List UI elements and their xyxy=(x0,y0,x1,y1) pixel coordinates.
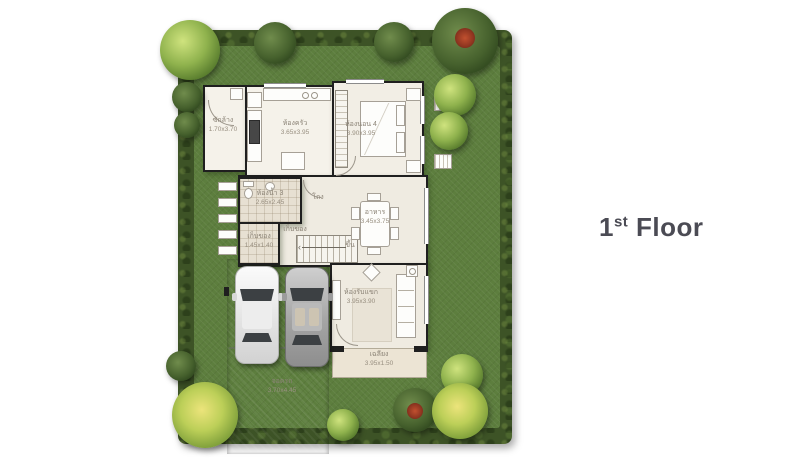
stairs-direction-line xyxy=(302,247,346,248)
room-terrace xyxy=(332,348,427,378)
toilet-bowl xyxy=(244,188,253,199)
bush-left-2 xyxy=(174,112,200,138)
car-windshield xyxy=(290,288,324,301)
area-rug xyxy=(352,288,392,342)
gate-post-left xyxy=(224,287,229,296)
floor-plan-image: ‹ xyxy=(168,4,564,454)
tree-top-left xyxy=(160,20,220,80)
car-mirror xyxy=(328,293,333,301)
sofa-cushion-line xyxy=(398,322,414,323)
dining-chair xyxy=(390,227,399,240)
bush-left-1 xyxy=(172,82,202,112)
side-table-lamp xyxy=(409,268,416,275)
dining-chair xyxy=(351,207,360,220)
ac-unit xyxy=(434,154,452,169)
wardrobe xyxy=(335,90,348,168)
car-seat xyxy=(309,308,319,326)
car-silver xyxy=(285,267,329,367)
tree-red-accent xyxy=(455,28,475,48)
stairs-arrow: ‹ xyxy=(298,242,301,252)
duvet-fold xyxy=(362,103,392,155)
laundry-sink xyxy=(230,88,243,100)
tree-right-1 xyxy=(434,74,476,116)
terrace-column-left xyxy=(330,346,344,352)
staircase xyxy=(296,235,358,263)
tree-right-2 xyxy=(430,112,468,150)
tree-top-right-dark xyxy=(432,8,498,74)
side-step xyxy=(218,246,237,255)
bush-top-1 xyxy=(254,22,296,64)
nightstand xyxy=(406,160,421,173)
toilet-tank xyxy=(243,181,254,187)
side-step xyxy=(218,214,237,223)
car-seat xyxy=(295,308,305,326)
page-title: 1st Floor xyxy=(599,212,704,243)
side-step xyxy=(218,230,237,239)
car-mirror xyxy=(232,293,237,301)
kitchen-counter xyxy=(263,88,331,101)
car-white xyxy=(235,266,279,364)
floor-word: Floor xyxy=(636,212,704,242)
tree-bottom-left-yellow xyxy=(172,382,238,448)
bush-bottom-left xyxy=(166,351,196,381)
pillow xyxy=(396,105,405,126)
floor-suffix: st xyxy=(614,213,628,230)
car-rear-window xyxy=(242,333,272,342)
bush-driveway-right xyxy=(327,409,359,441)
kitchen-sink-bowl xyxy=(311,92,318,99)
floor-number: 1 xyxy=(599,212,614,242)
dining-chair xyxy=(367,193,381,201)
pillow xyxy=(396,132,405,153)
sofa-cushion-line xyxy=(398,290,414,291)
sofa-cushion-line xyxy=(398,306,414,307)
car-rear-window xyxy=(292,335,322,345)
kitchen-island xyxy=(281,152,305,170)
floor-plan-page: ‹ xyxy=(0,0,800,458)
dining-table xyxy=(360,201,390,247)
tv-console xyxy=(332,280,341,320)
dining-chair xyxy=(390,207,399,220)
terrace-column-right xyxy=(414,346,428,352)
side-step xyxy=(218,198,237,207)
tree-bottom-right-dark xyxy=(393,388,437,432)
refrigerator xyxy=(247,92,262,108)
tree-red-accent xyxy=(407,403,423,419)
tree-bottom-right-yellow xyxy=(432,383,488,439)
bedroom-top-window xyxy=(346,79,384,84)
nightstand xyxy=(406,88,421,101)
stove xyxy=(249,120,260,144)
car-roof xyxy=(242,303,272,329)
living-right-window xyxy=(424,276,429,324)
dining-right-window xyxy=(424,188,429,244)
dining-chair xyxy=(351,227,360,240)
side-step xyxy=(218,182,237,191)
kitchen-sink-bowl xyxy=(302,92,309,99)
room-storage xyxy=(238,222,280,265)
bathroom-sink xyxy=(265,182,275,191)
bush-top-2 xyxy=(374,22,414,62)
car-mirror xyxy=(282,293,287,301)
dining-chair xyxy=(367,247,381,255)
car-windshield xyxy=(240,289,274,301)
